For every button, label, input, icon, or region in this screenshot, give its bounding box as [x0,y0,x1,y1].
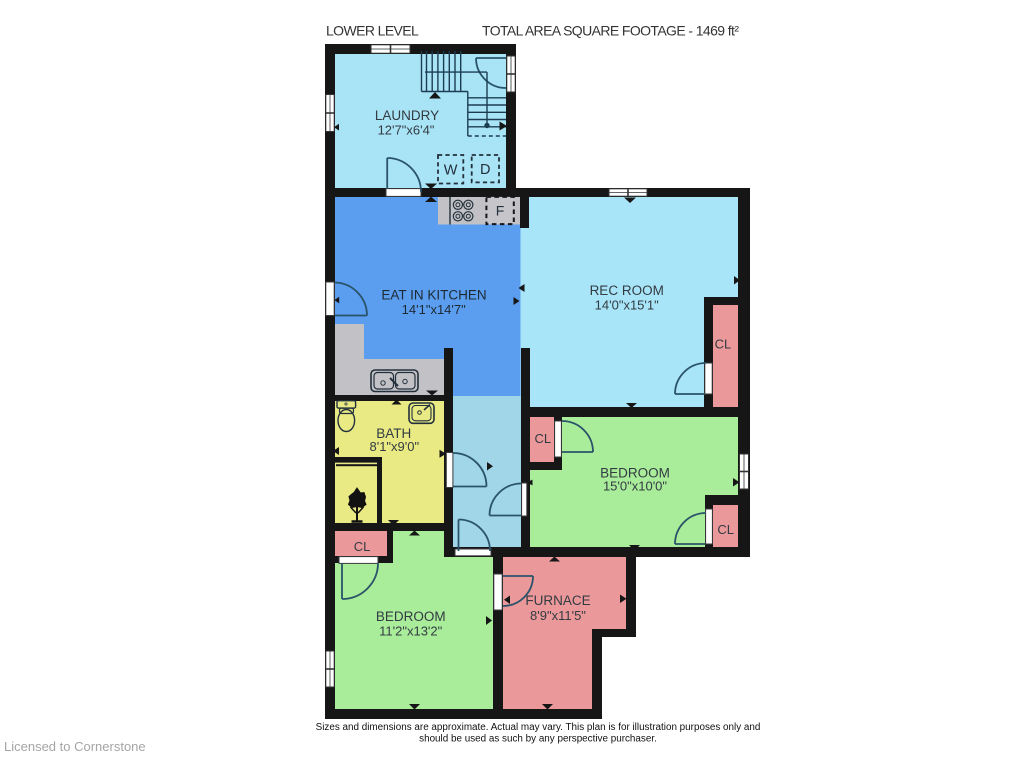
svg-text:CL: CL [354,539,371,554]
svg-text:Licensed to Cornerstone: Licensed to Cornerstone [4,739,146,754]
svg-text:CL: CL [715,337,732,352]
svg-text:D: D [480,162,490,178]
svg-text:Sizes and dimensions are appro: Sizes and dimensions are approximate. Ac… [316,722,761,733]
svg-text:LAUNDRY: LAUNDRY [375,108,439,123]
svg-text:FURNACE: FURNACE [525,593,590,608]
svg-text:BEDROOM: BEDROOM [376,609,446,624]
svg-text:should be used as such by any: should be used as such by any perspectiv… [419,734,657,745]
svg-text:W: W [444,163,458,179]
svg-text:8'1"x9'0": 8'1"x9'0" [369,439,419,454]
svg-text:8'9"x11'5": 8'9"x11'5" [530,608,586,623]
svg-text:15'0"x10'0": 15'0"x10'0" [603,479,667,494]
svg-text:14'1"x14'7": 14'1"x14'7" [402,302,466,317]
svg-text:EAT IN KITCHEN: EAT IN KITCHEN [381,288,486,303]
svg-text:TOTAL AREA SQUARE FOOTAGE - 14: TOTAL AREA SQUARE FOOTAGE - 1469 ft² [482,23,739,39]
svg-text:CL: CL [717,522,734,537]
svg-text:14'0"x15'1": 14'0"x15'1" [595,298,659,313]
svg-text:F: F [496,203,505,219]
svg-text:11'2"x13'2": 11'2"x13'2" [379,624,442,639]
svg-text:CL: CL [534,431,551,446]
svg-text:REC ROOM: REC ROOM [590,283,664,298]
svg-text:LOWER LEVEL: LOWER LEVEL [326,23,419,39]
svg-text:12'7"x6'4": 12'7"x6'4" [378,123,435,138]
